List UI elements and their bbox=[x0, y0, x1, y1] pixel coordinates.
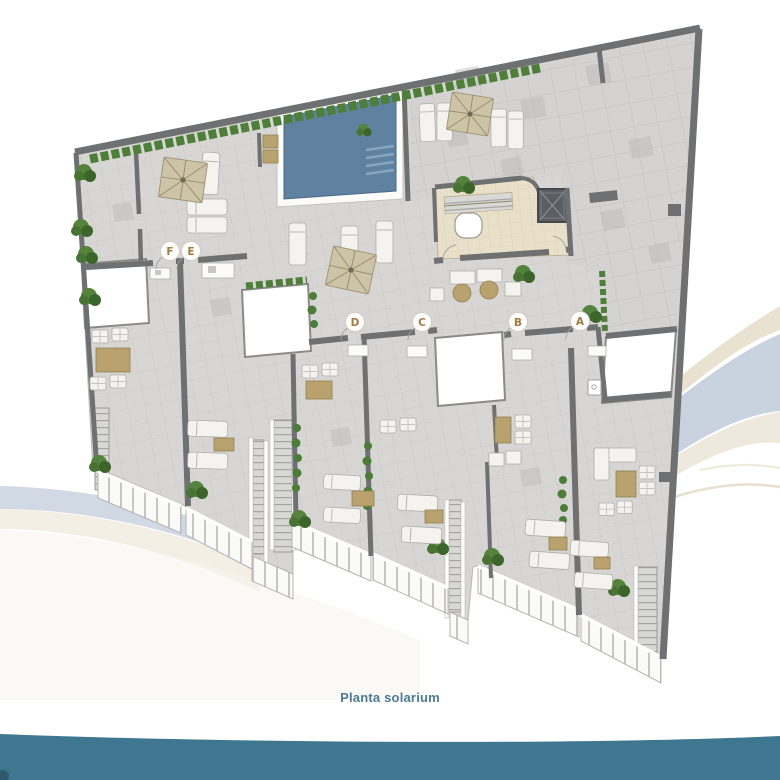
svg-text:A: A bbox=[576, 316, 585, 328]
wc-fixture bbox=[455, 213, 482, 238]
stool bbox=[453, 284, 471, 302]
svg-text:B: B bbox=[514, 317, 522, 329]
skylight-box bbox=[435, 332, 505, 406]
svg-text:F: F bbox=[166, 246, 173, 258]
wall-stub bbox=[668, 204, 681, 216]
solarium-plan-page: FEDCBA Planta solarium bbox=[0, 0, 780, 780]
skylight-box bbox=[242, 284, 311, 357]
pool-cabinet bbox=[263, 150, 278, 163]
svg-text:E: E bbox=[187, 246, 194, 258]
floor-plan-illustration: FEDCBA bbox=[0, 0, 780, 780]
stair-flight bbox=[253, 440, 264, 554]
outdoor-shower bbox=[588, 380, 601, 395]
stool bbox=[480, 281, 498, 299]
elevator bbox=[538, 189, 567, 222]
wall-stub bbox=[659, 472, 672, 482]
right-swoosh-line bbox=[660, 485, 780, 502]
svg-text:D: D bbox=[351, 317, 360, 329]
stair-flight bbox=[449, 500, 461, 612]
stair-flight bbox=[274, 420, 292, 552]
plan-caption: Planta solarium bbox=[0, 690, 780, 705]
bottom-wave-band bbox=[0, 734, 780, 780]
svg-text:C: C bbox=[418, 317, 426, 329]
pool-cabinet bbox=[263, 135, 278, 148]
stair-flight bbox=[638, 567, 657, 655]
right-swoosh-line2 bbox=[700, 465, 780, 470]
